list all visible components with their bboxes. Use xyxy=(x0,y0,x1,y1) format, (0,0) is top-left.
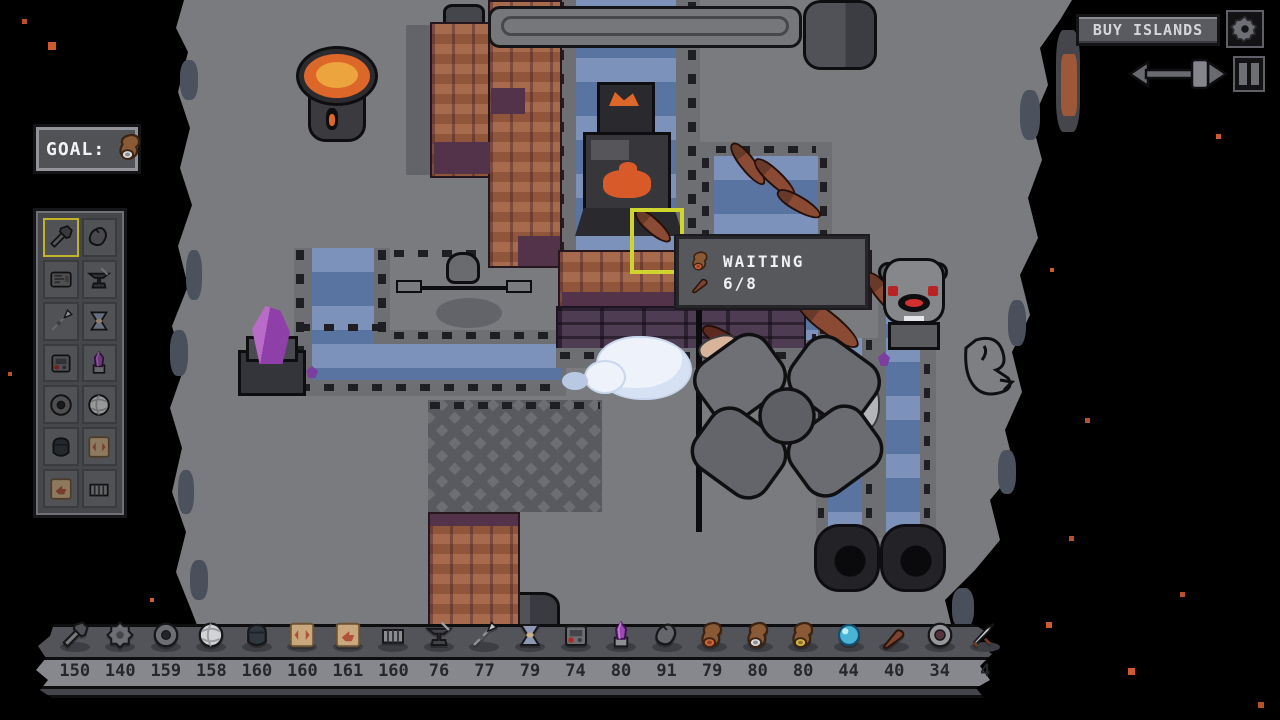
card-arrow-icon xyxy=(333,620,363,650)
resource-count-stone-wheel: 159 xyxy=(143,658,189,686)
resource-count-card-slots: 160 xyxy=(280,658,326,686)
resource-hammer-tool[interactable] xyxy=(52,598,98,654)
resource-bar-icons xyxy=(36,598,1026,654)
machine-icon xyxy=(48,266,74,292)
club-icon xyxy=(879,620,909,650)
tool-gray-pouch[interactable] xyxy=(82,218,118,257)
resource-count-purple-crystal: 80 xyxy=(598,658,644,686)
channel-edge xyxy=(924,340,930,530)
brick-shade xyxy=(430,514,518,526)
resource-count-sword: 4 xyxy=(962,658,1008,686)
windmill-blade xyxy=(396,280,422,293)
grinder-mouth-core xyxy=(905,299,923,307)
furnace-fire xyxy=(603,170,651,198)
resource-count-card-arrow: 161 xyxy=(325,658,371,686)
tool-hammer-tool[interactable] xyxy=(43,218,79,257)
gray-pouch-icon xyxy=(652,620,682,650)
resource-stone-wheel[interactable] xyxy=(143,598,189,654)
tooltip-row: 6/8 xyxy=(689,272,855,294)
buy-islands-label: BUY ISLANDS xyxy=(1093,21,1203,39)
pause-button[interactable] xyxy=(1233,56,1265,92)
island-edge-patch xyxy=(1020,90,1040,140)
wheel[interactable] xyxy=(880,524,946,592)
settings-gear-icon xyxy=(1230,14,1260,44)
lava-core xyxy=(316,62,358,88)
resource-spear[interactable] xyxy=(462,598,508,654)
windmill-head xyxy=(446,252,480,284)
stone-wheel-icon xyxy=(151,620,181,650)
speed-slider[interactable] xyxy=(1126,56,1230,92)
resource-count-spear: 77 xyxy=(462,658,508,686)
game-screen: WAITING6/8 GOAL: BUY ISLANDS 15014015915… xyxy=(0,0,1280,720)
resource-purple-crystal[interactable] xyxy=(598,598,644,654)
fan-machine[interactable] xyxy=(680,322,895,510)
rock xyxy=(803,0,877,70)
resource-count-hammer-tool: 150 xyxy=(52,658,98,686)
fence-icon xyxy=(378,620,408,650)
resource-bag-gold[interactable] xyxy=(780,598,826,654)
anvil-icon xyxy=(424,620,454,650)
resource-card-arrow[interactable] xyxy=(325,598,371,654)
sword-icon xyxy=(970,620,1000,650)
pause-bar xyxy=(1251,63,1259,85)
grinder-red-icon xyxy=(48,350,74,376)
resource-count-gray-pouch: 91 xyxy=(644,658,690,686)
spear-icon xyxy=(469,620,499,650)
island-edge-patch xyxy=(998,450,1016,494)
resource-grinder-red[interactable] xyxy=(553,598,599,654)
bag-white-icon xyxy=(743,620,773,650)
purple-crystal-icon xyxy=(86,350,112,376)
resource-count-gear-rock: 140 xyxy=(98,658,144,686)
tool-purple-crystal[interactable] xyxy=(82,344,118,383)
tool-sidebar xyxy=(33,208,127,518)
grinder-eye xyxy=(888,286,898,296)
resource-club[interactable] xyxy=(871,598,917,654)
furnace-fire-tip xyxy=(619,162,637,174)
grinder-eye xyxy=(928,286,938,296)
resource-count-wool-ball: 158 xyxy=(189,658,235,686)
shadow xyxy=(406,25,432,175)
tool-wool-ball[interactable] xyxy=(82,385,118,424)
island-edge-patch xyxy=(178,470,194,514)
brick-shade xyxy=(434,142,490,174)
tool-bucket[interactable] xyxy=(43,427,79,466)
island-edge-patch xyxy=(190,560,208,600)
resource-bag-white[interactable] xyxy=(735,598,781,654)
tool-spindle[interactable] xyxy=(82,302,118,341)
tool-fence[interactable] xyxy=(82,469,118,508)
resource-card-slots[interactable] xyxy=(280,598,326,654)
slider-right-arrow[interactable] xyxy=(1208,62,1226,86)
tooltip-rows: WAITING6/8 xyxy=(689,250,855,294)
wool-ball-icon xyxy=(196,620,226,650)
resource-bucket[interactable] xyxy=(234,598,280,654)
settings-button[interactable] xyxy=(1226,10,1264,48)
resource-count-bag-orange: 79 xyxy=(689,658,735,686)
card-arrow-icon xyxy=(48,476,74,502)
star-dot xyxy=(1046,622,1052,628)
resource-count-bag-white: 80 xyxy=(735,658,781,686)
card-slots-icon xyxy=(86,434,112,460)
tooltip-text: WAITING xyxy=(723,252,804,271)
resource-count-fence: 160 xyxy=(371,658,417,686)
brick-shade xyxy=(491,88,525,114)
tool-stone-wheel[interactable] xyxy=(43,385,79,424)
cloud xyxy=(584,360,626,394)
card-slots-icon xyxy=(287,620,317,650)
star-dot xyxy=(1085,418,1090,423)
blue-orb-icon xyxy=(834,620,864,650)
tooltip-row: WAITING xyxy=(689,250,855,272)
bridge-tube[interactable] xyxy=(488,6,802,48)
bag-orange-icon xyxy=(689,250,711,272)
creature[interactable] xyxy=(946,334,1016,406)
wool-ball-icon xyxy=(86,392,112,418)
island-edge-patch xyxy=(170,330,188,376)
anvil-icon xyxy=(86,266,112,292)
star-dot xyxy=(22,19,27,24)
goal-panel: GOAL: xyxy=(33,124,141,174)
star-dot xyxy=(1050,268,1054,272)
resource-shield[interactable] xyxy=(917,598,963,654)
star-dot xyxy=(48,42,56,50)
shield-icon xyxy=(925,620,955,650)
rock-brick-edge xyxy=(1061,54,1077,116)
star-dot xyxy=(1216,134,1221,139)
grinder-red-icon xyxy=(561,620,591,650)
island-edge-patch xyxy=(186,250,202,300)
tooltip-text: 6/8 xyxy=(723,274,758,293)
tool-spear[interactable] xyxy=(43,302,79,341)
bag-orange-icon xyxy=(697,620,727,650)
tube-inner xyxy=(501,16,789,36)
furnace-chimney xyxy=(597,82,655,138)
resource-anvil[interactable] xyxy=(416,598,462,654)
tool-grinder-red[interactable] xyxy=(43,344,79,383)
resource-blue-orb[interactable] xyxy=(826,598,872,654)
resource-count-bag-gold: 80 xyxy=(780,658,826,686)
grinder-teeth xyxy=(904,316,924,321)
resource-gray-pouch[interactable] xyxy=(644,598,690,654)
wheel[interactable] xyxy=(814,524,880,592)
resource-gear-rock[interactable] xyxy=(98,598,144,654)
resource-sword[interactable] xyxy=(962,598,1008,654)
cloud-shadow xyxy=(562,372,588,390)
resource-count-anvil: 76 xyxy=(416,658,462,686)
gray-pouch-icon xyxy=(86,224,112,250)
resource-count-blue-orb: 44 xyxy=(826,658,872,686)
slider-handle[interactable] xyxy=(1192,60,1208,88)
windmill-blade xyxy=(506,280,532,293)
star-dot xyxy=(1069,536,1074,541)
hammer-tool-icon xyxy=(48,224,74,250)
star-dot xyxy=(1258,702,1264,708)
resource-count-shield: 34 xyxy=(917,658,963,686)
spiky-ground xyxy=(428,400,602,512)
lava-cauldron[interactable] xyxy=(296,36,378,148)
resource-bag-orange[interactable] xyxy=(689,598,735,654)
bag-gold-icon xyxy=(788,620,818,650)
windmill[interactable] xyxy=(396,250,536,334)
fence-icon xyxy=(86,476,112,502)
pause-bar xyxy=(1239,63,1247,85)
resource-fence[interactable] xyxy=(371,598,417,654)
spear-icon xyxy=(48,308,74,334)
star-dot xyxy=(1180,592,1185,597)
island-edge-patch xyxy=(180,60,198,100)
resource-wool-ball[interactable] xyxy=(189,598,235,654)
windmill-shadow xyxy=(436,298,502,328)
goal-item-icon xyxy=(115,132,145,166)
road-edge xyxy=(300,324,392,331)
spindle-icon xyxy=(515,620,545,650)
crystal-pedestal[interactable] xyxy=(236,302,308,398)
channel-edge xyxy=(300,384,560,391)
tool-anvil[interactable] xyxy=(82,260,118,299)
stone-wheel-icon xyxy=(48,392,74,418)
spiky-edge xyxy=(430,402,600,409)
star-dot xyxy=(8,372,12,376)
vent-flame xyxy=(329,114,335,126)
hammer-tool-icon xyxy=(60,620,90,650)
club-icon xyxy=(689,272,711,294)
status-tooltip: WAITING6/8 xyxy=(676,236,868,308)
resource-count-bucket: 160 xyxy=(234,658,280,686)
bucket-icon xyxy=(242,620,272,650)
resource-bar: 1501401591581601601611607677797480917980… xyxy=(36,598,992,698)
star-dot xyxy=(1128,668,1135,675)
tool-machine[interactable] xyxy=(43,260,79,299)
resource-count-club: 40 xyxy=(871,658,917,686)
buy-islands-button[interactable]: BUY ISLANDS xyxy=(1076,14,1220,46)
tool-card-slots[interactable] xyxy=(82,427,118,466)
grinder-body xyxy=(888,322,940,350)
resource-spindle[interactable] xyxy=(507,598,553,654)
tool-card-arrow[interactable] xyxy=(43,469,79,508)
goal-label: GOAL: xyxy=(46,139,105,160)
spindle-icon xyxy=(86,308,112,334)
resource-count-spindle: 79 xyxy=(507,658,553,686)
furnace-panel xyxy=(591,140,629,160)
bucket-icon xyxy=(48,434,74,460)
purple-crystal-icon xyxy=(606,620,636,650)
bag-white-icon xyxy=(115,132,145,162)
water-channel xyxy=(312,344,562,380)
resource-count-grinder-red: 74 xyxy=(553,658,599,686)
purple-crystal xyxy=(252,306,290,364)
gear-rock-icon xyxy=(105,620,135,650)
resource-bar-counts: 1501401591581601601611607677797480917980… xyxy=(36,658,1026,686)
